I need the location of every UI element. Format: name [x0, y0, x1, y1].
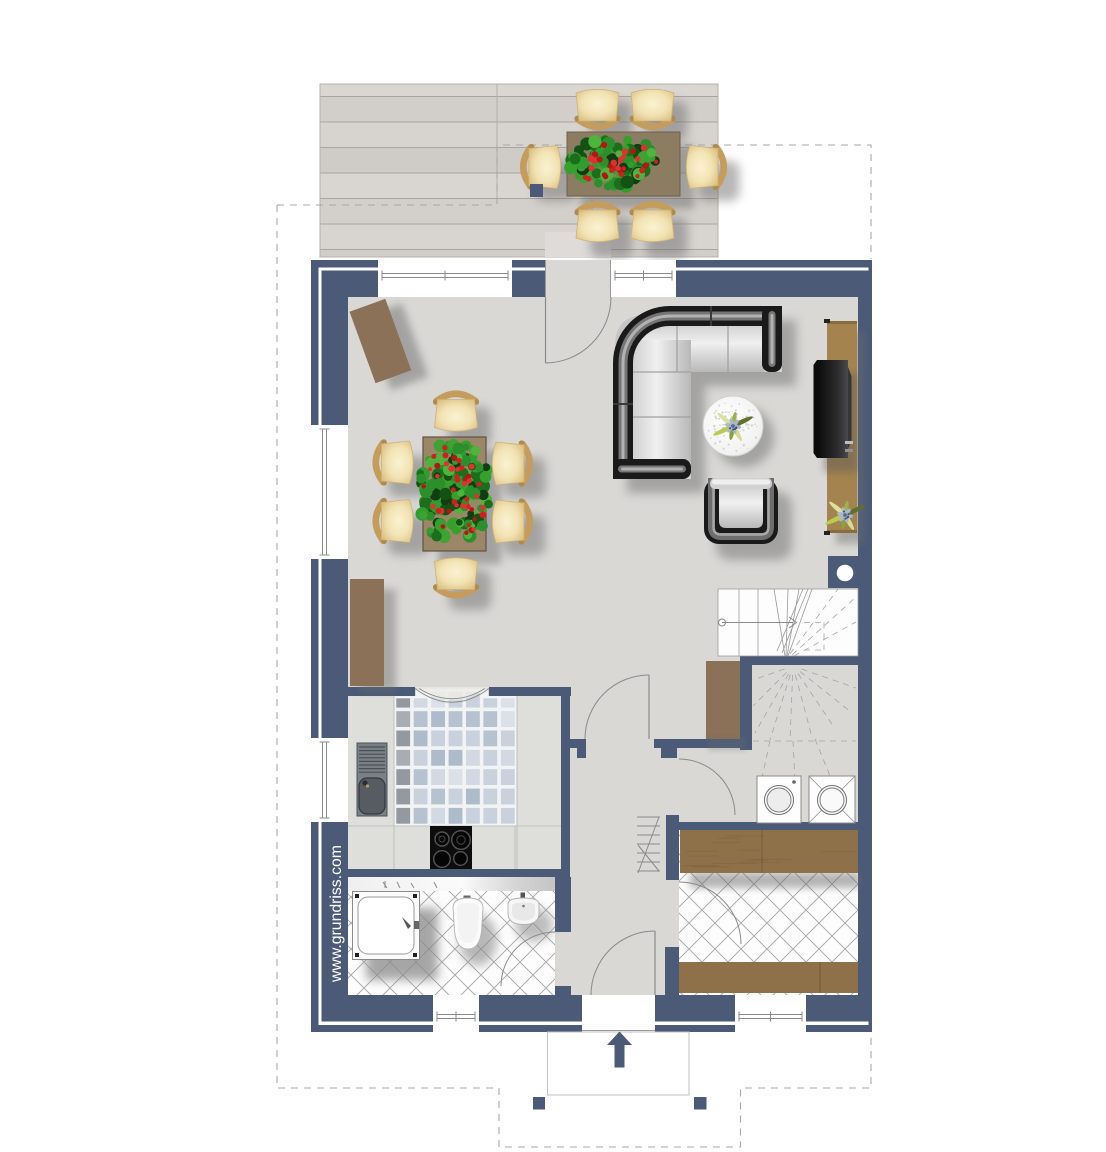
svg-text:www.grundriss.com: www.grundriss.com: [328, 845, 345, 983]
